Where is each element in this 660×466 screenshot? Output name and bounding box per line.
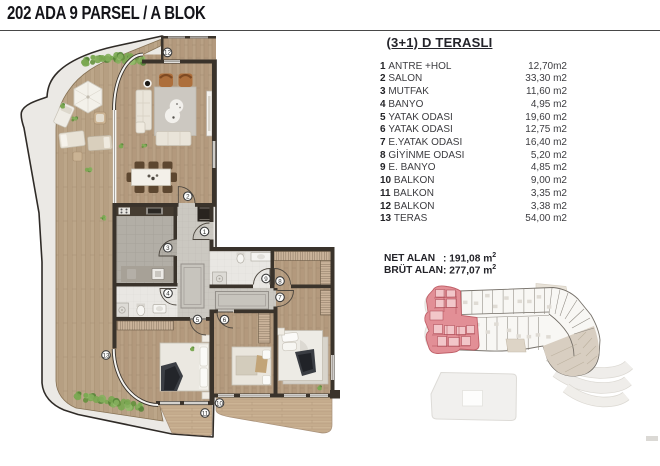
svg-text:4: 4 xyxy=(166,291,170,298)
svg-text:12: 12 xyxy=(164,50,171,57)
svg-text:11: 11 xyxy=(202,410,209,417)
svg-text:3: 3 xyxy=(166,245,170,252)
svg-text:13: 13 xyxy=(103,352,110,359)
svg-text:8: 8 xyxy=(278,278,282,285)
svg-text:9: 9 xyxy=(264,276,268,283)
svg-text:5: 5 xyxy=(196,317,200,324)
svg-text:7: 7 xyxy=(278,295,282,302)
svg-text:1: 1 xyxy=(203,229,207,236)
svg-text:10: 10 xyxy=(216,400,223,407)
svg-text:2: 2 xyxy=(186,194,190,201)
svg-text:6: 6 xyxy=(223,317,227,324)
